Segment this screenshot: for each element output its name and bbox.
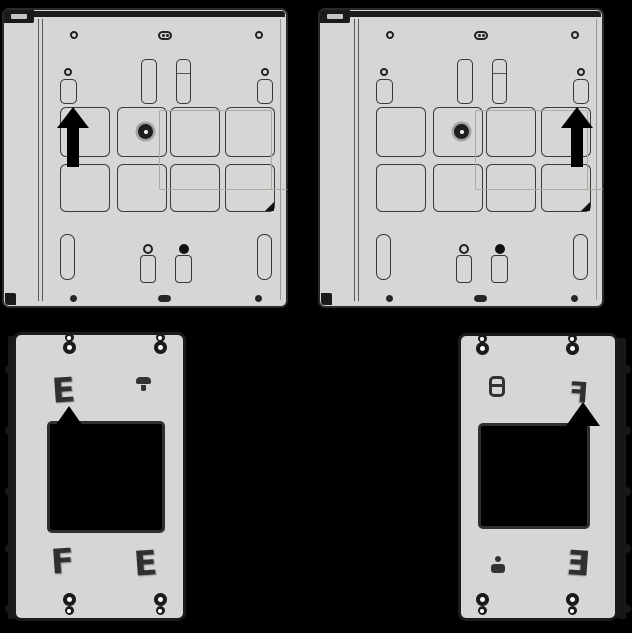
- knockout-rect: [456, 255, 472, 283]
- corner-notch: [11, 14, 27, 19]
- arrow-shaft: [67, 128, 79, 167]
- flange-tab: [622, 604, 631, 613]
- clip-e-icon: E: [566, 546, 592, 582]
- cable-slot: [141, 59, 157, 104]
- corner-notch: [327, 14, 343, 19]
- clip-e-icon: E: [51, 373, 77, 409]
- panel-top-edge: [7, 11, 285, 17]
- panel-top-edge: [323, 11, 601, 17]
- side-fold-line: [38, 19, 43, 301]
- keyhole-slot: [153, 594, 167, 615]
- keyhole-slot: [565, 594, 579, 615]
- screw-hole: [577, 68, 585, 76]
- side-fold-line: [354, 19, 359, 301]
- corner-mark: [581, 202, 590, 211]
- filled-hole: [179, 244, 189, 254]
- knockout-rect: [140, 255, 156, 283]
- mounting-hole: [70, 31, 78, 39]
- rivet-dot: [386, 295, 393, 302]
- double-hole: [158, 31, 172, 40]
- panel-corner-tab: [320, 10, 350, 23]
- knockout-rect: [491, 255, 508, 283]
- panel-corner-tab: [4, 10, 34, 23]
- knockout-rect: [376, 79, 393, 104]
- corner-mark: [265, 202, 274, 211]
- rivet-double-dot: [474, 295, 487, 302]
- screw-hole: [64, 68, 72, 76]
- arrow-head: [57, 107, 89, 128]
- clip-tab-icon: [491, 556, 505, 573]
- mounting-hole: [255, 31, 263, 39]
- rivet-dot: [255, 295, 262, 302]
- keyhole-slot: [565, 334, 579, 355]
- rear-panel-left: [2, 8, 288, 308]
- edge-line: [596, 19, 597, 300]
- rivet-dot: [571, 295, 578, 302]
- flange-tab: [622, 426, 631, 435]
- knockout-rect: [257, 79, 273, 104]
- knockout-rect: [175, 255, 192, 283]
- up-arrow-icon: [57, 107, 89, 167]
- panel-corner-tab: [5, 293, 16, 305]
- arrow-head: [561, 107, 593, 128]
- keyhole-slot: [62, 594, 76, 615]
- ghost-outline-line: [271, 189, 287, 190]
- clip-e-icon: E: [133, 546, 159, 582]
- up-arrow-icon: [561, 107, 593, 167]
- slot-divider: [177, 73, 190, 74]
- keyhole-slot: [62, 333, 76, 354]
- knockout-square: [60, 164, 110, 212]
- open-hole: [143, 244, 153, 254]
- installation-diagram: E F E F E: [0, 0, 632, 633]
- rivet-double-dot: [158, 295, 171, 302]
- screw-hole: [261, 68, 269, 76]
- ghost-outline-line: [587, 189, 603, 190]
- clip-buckle-icon: [489, 376, 505, 397]
- arrow-shaft: [571, 128, 583, 167]
- knockout-rect: [60, 79, 77, 104]
- side-flange: [617, 338, 626, 619]
- cable-slot: [573, 234, 588, 280]
- center-screw-hole: [454, 124, 469, 139]
- ghost-outline: [159, 110, 272, 190]
- bracket-right: F E: [450, 330, 632, 627]
- keyhole-slot: [475, 594, 489, 615]
- screw-hole: [380, 68, 388, 76]
- flange-tab: [622, 544, 631, 553]
- panel-corner-tab: [321, 293, 332, 305]
- knockout-rect: [573, 79, 589, 104]
- cable-slot: [176, 59, 191, 104]
- cable-slot: [457, 59, 473, 104]
- clip-f-icon: F: [50, 544, 76, 580]
- flange-tab: [622, 487, 631, 496]
- up-arrow-icon: [566, 402, 600, 426]
- keyhole-slot: [475, 334, 489, 355]
- bracket-left: E F E: [8, 330, 194, 627]
- cable-slot: [376, 234, 391, 280]
- center-screw-hole: [138, 124, 153, 139]
- rear-panel-right: [318, 8, 604, 308]
- clip-tab-icon: [136, 377, 151, 391]
- double-hole: [474, 31, 488, 40]
- mounting-hole: [386, 31, 394, 39]
- mounting-hole: [571, 31, 579, 39]
- knockout-square: [376, 107, 426, 157]
- cable-slot: [492, 59, 507, 104]
- window-cutout: [47, 421, 165, 533]
- cable-slot: [257, 234, 272, 280]
- window-cutout: [478, 423, 590, 529]
- edge-line: [280, 19, 281, 300]
- filled-hole: [495, 244, 505, 254]
- cable-slot: [60, 234, 75, 280]
- slot-divider: [493, 73, 506, 74]
- rivet-dot: [70, 295, 77, 302]
- flange-tab: [622, 365, 631, 374]
- open-hole: [459, 244, 469, 254]
- up-arrow-icon: [53, 406, 85, 429]
- knockout-square: [376, 164, 426, 212]
- keyhole-slot: [153, 333, 167, 354]
